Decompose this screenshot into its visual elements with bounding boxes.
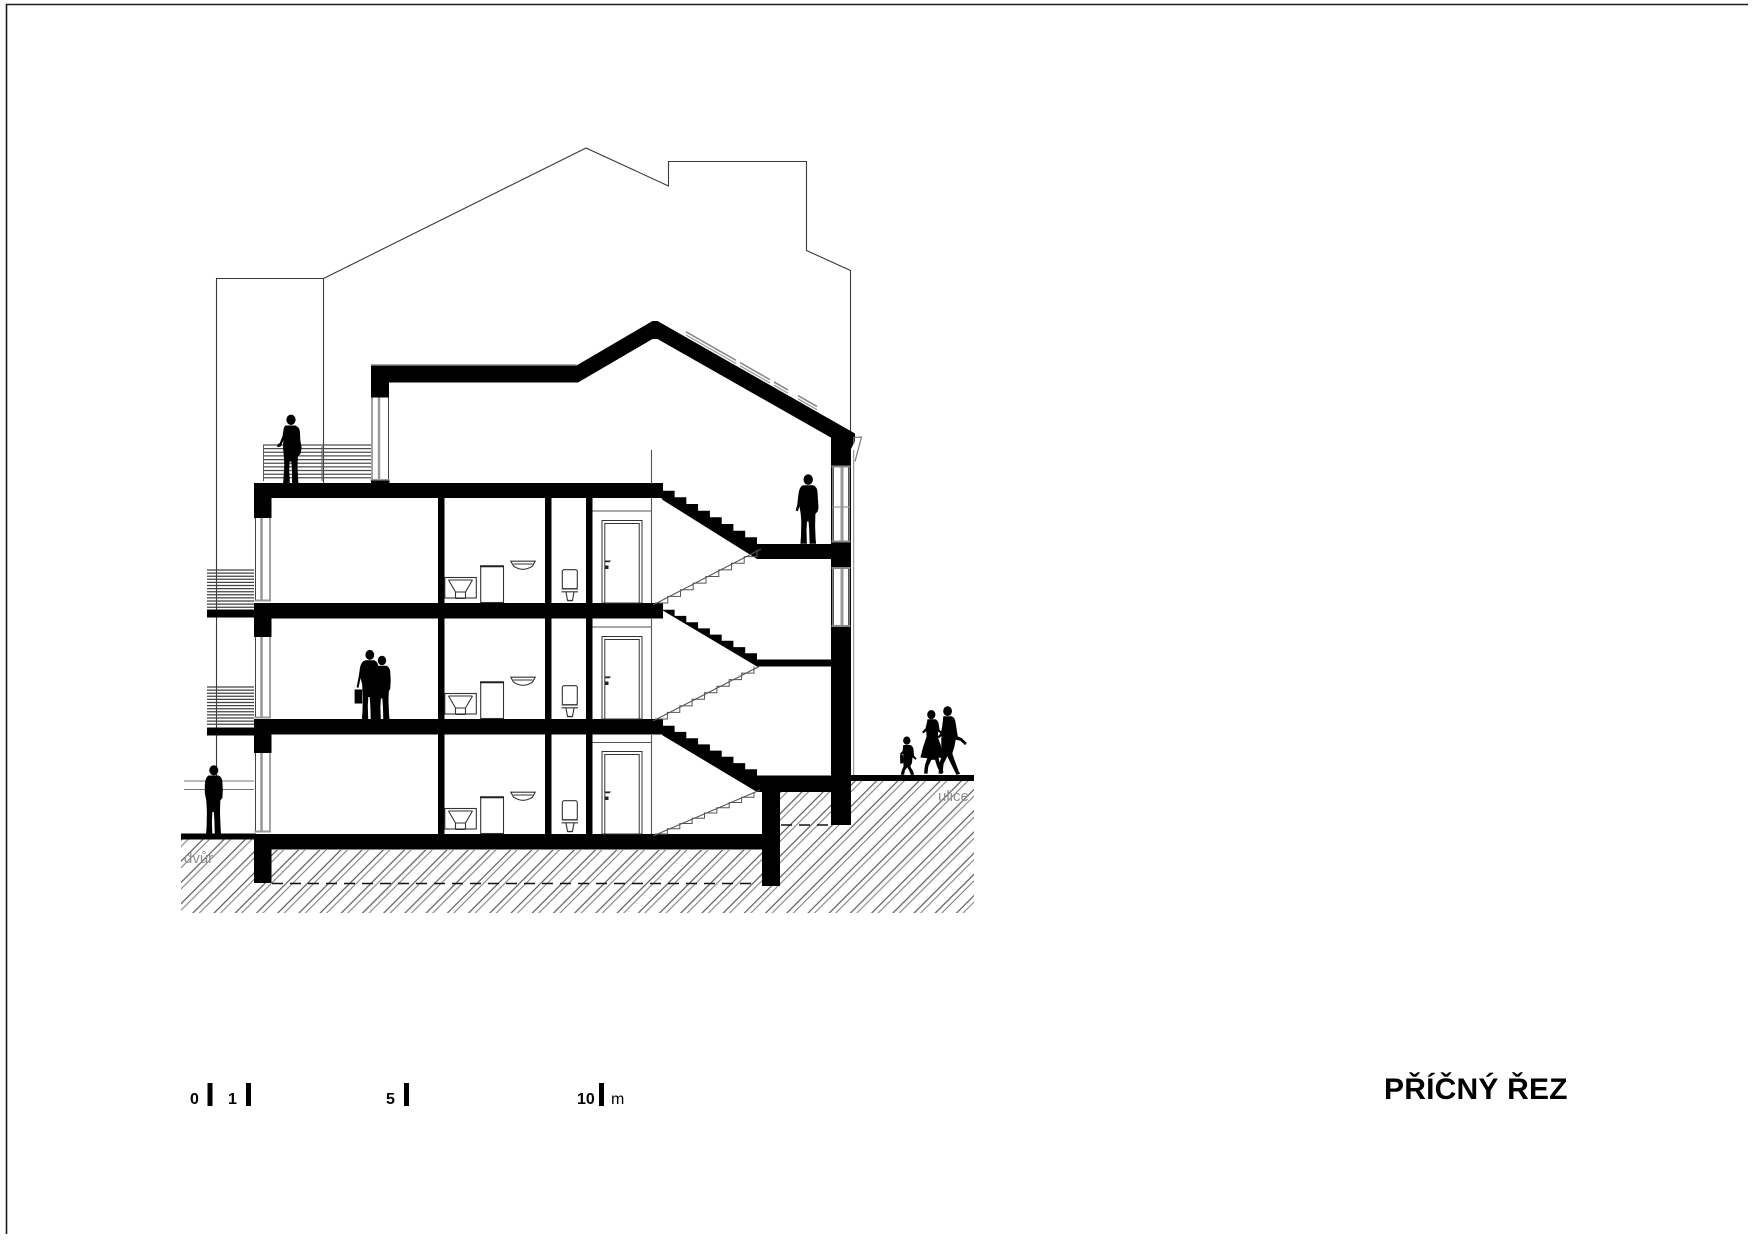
svg-text:10: 10 <box>577 1091 595 1108</box>
svg-text:0: 0 <box>190 1091 199 1108</box>
svg-text:ulice: ulice <box>938 788 969 805</box>
svg-text:5: 5 <box>386 1091 395 1108</box>
svg-text:1: 1 <box>228 1091 237 1108</box>
svg-text:dvůr: dvůr <box>184 850 213 867</box>
svg-text:PŘÍČNÝ ŘEZ: PŘÍČNÝ ŘEZ <box>1384 1072 1568 1106</box>
svg-text:m: m <box>611 1091 624 1108</box>
